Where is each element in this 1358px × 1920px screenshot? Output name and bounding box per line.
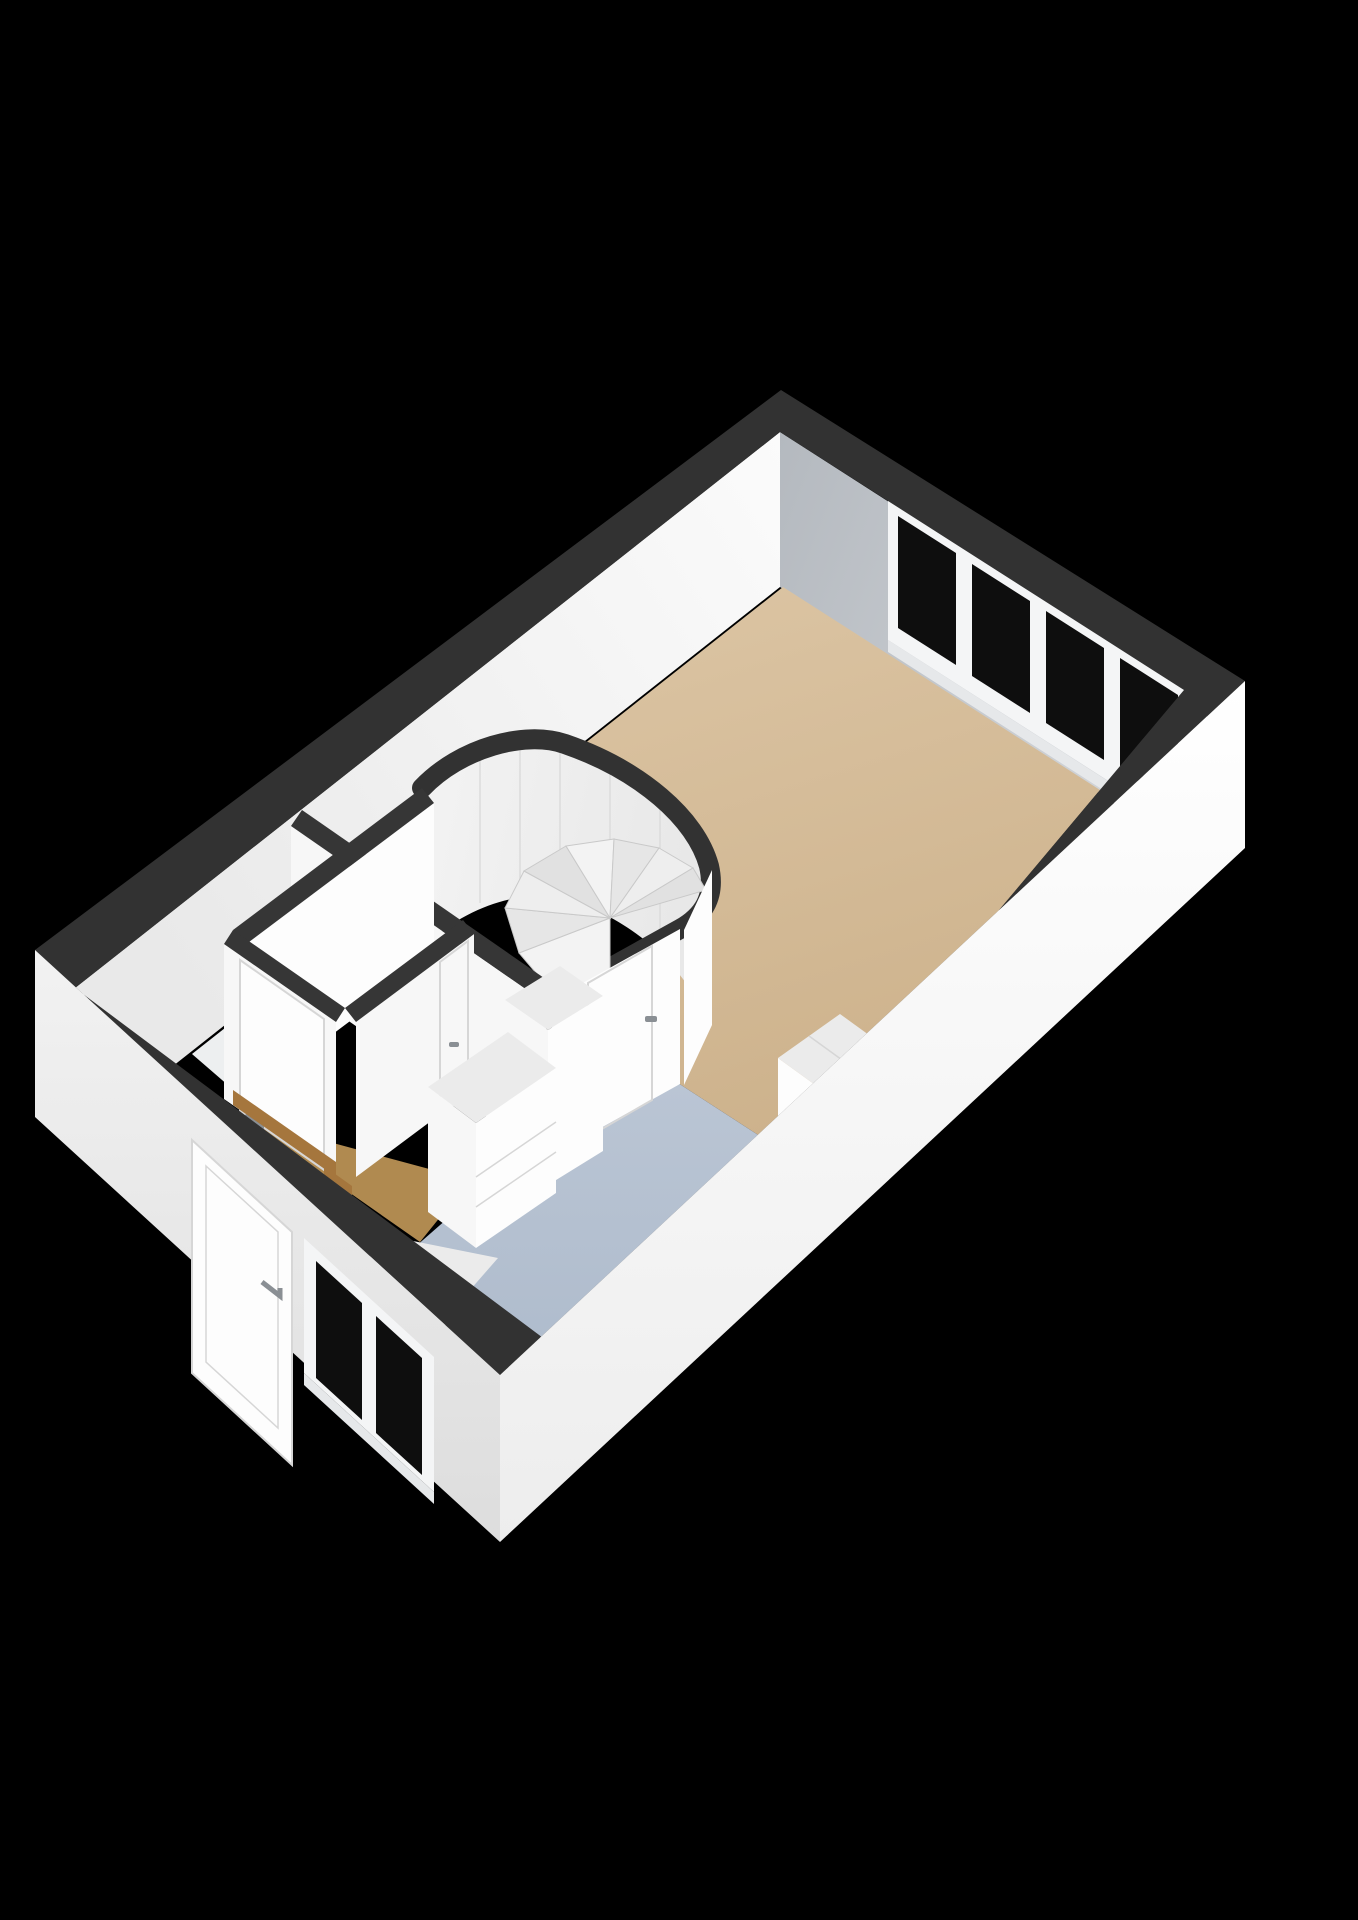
door-handle-icon bbox=[449, 1042, 459, 1047]
floorplan-stage bbox=[0, 0, 1358, 1920]
door-handle-icon bbox=[645, 1016, 657, 1022]
